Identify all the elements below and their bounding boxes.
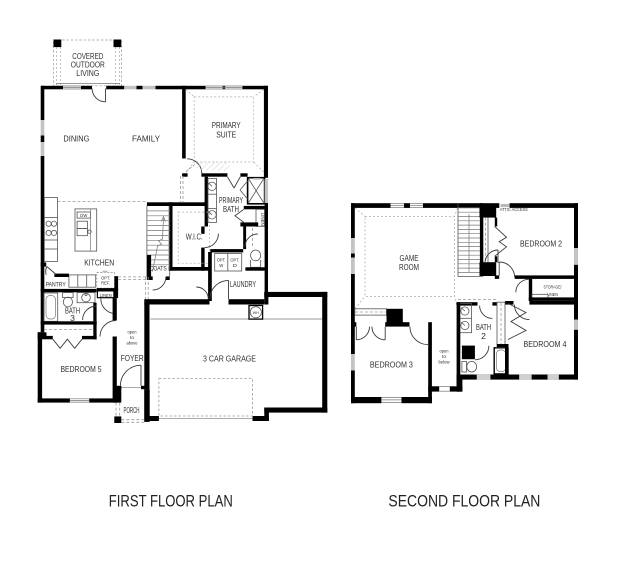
svg-text:PORCH: PORCH	[124, 405, 140, 415]
svg-text:OPT.: OPT.	[101, 275, 110, 281]
svg-text:FIRST FLOOR PLAN: FIRST FLOOR PLAN	[109, 493, 233, 511]
svg-text:OPT.: OPT.	[230, 258, 239, 264]
svg-text:BATH: BATH	[223, 204, 239, 214]
svg-text:SUITE: SUITE	[216, 129, 236, 139]
svg-text:LINEN: LINEN	[100, 293, 112, 299]
svg-text:W: W	[219, 263, 223, 269]
svg-text:below: below	[439, 359, 450, 365]
svg-text:LINEN: LINEN	[547, 292, 558, 298]
svg-text:DW: DW	[80, 213, 87, 219]
svg-text:BEDROOM 5: BEDROOM 5	[61, 364, 102, 374]
svg-text:LIVING: LIVING	[76, 68, 99, 78]
svg-text:BEDROOM 4: BEDROOM 4	[524, 339, 567, 349]
svg-text:REF.: REF.	[101, 281, 110, 287]
svg-text:to: to	[442, 354, 446, 360]
svg-text:LINEN: LINEN	[259, 213, 265, 226]
svg-text:BEDROOM 3: BEDROOM 3	[370, 360, 413, 370]
svg-text:3 CAR GARAGE: 3 CAR GARAGE	[203, 354, 256, 364]
svg-text:COATS: COATS	[150, 265, 167, 272]
svg-text:ROOM: ROOM	[399, 262, 419, 272]
svg-text:FOYER: FOYER	[121, 353, 144, 363]
svg-text:ATTIC ACCESS: ATTIC ACCESS	[500, 207, 529, 213]
svg-text:WH: WH	[253, 311, 259, 315]
svg-text:to: to	[130, 335, 134, 341]
svg-text:D: D	[233, 263, 238, 269]
svg-text:SECOND FLOOR PLAN: SECOND FLOOR PLAN	[388, 493, 540, 511]
svg-text:KITCHEN: KITCHEN	[84, 258, 114, 268]
svg-text:open: open	[440, 349, 449, 354]
svg-text:BEDROOM 2: BEDROOM 2	[520, 238, 562, 248]
svg-text:2: 2	[481, 331, 486, 341]
svg-text:OPT.: OPT.	[217, 258, 226, 264]
svg-text:open: open	[128, 330, 137, 335]
svg-text:PANTRY: PANTRY	[46, 281, 66, 288]
svg-text:LAUNDRY: LAUNDRY	[230, 279, 256, 289]
svg-text:STORAGE/: STORAGE/	[544, 285, 562, 291]
svg-text:W.I.C.: W.I.C.	[186, 231, 203, 241]
svg-text:DINING: DINING	[63, 133, 89, 143]
svg-text:FAMILY: FAMILY	[132, 133, 160, 143]
svg-text:above: above	[127, 340, 138, 346]
